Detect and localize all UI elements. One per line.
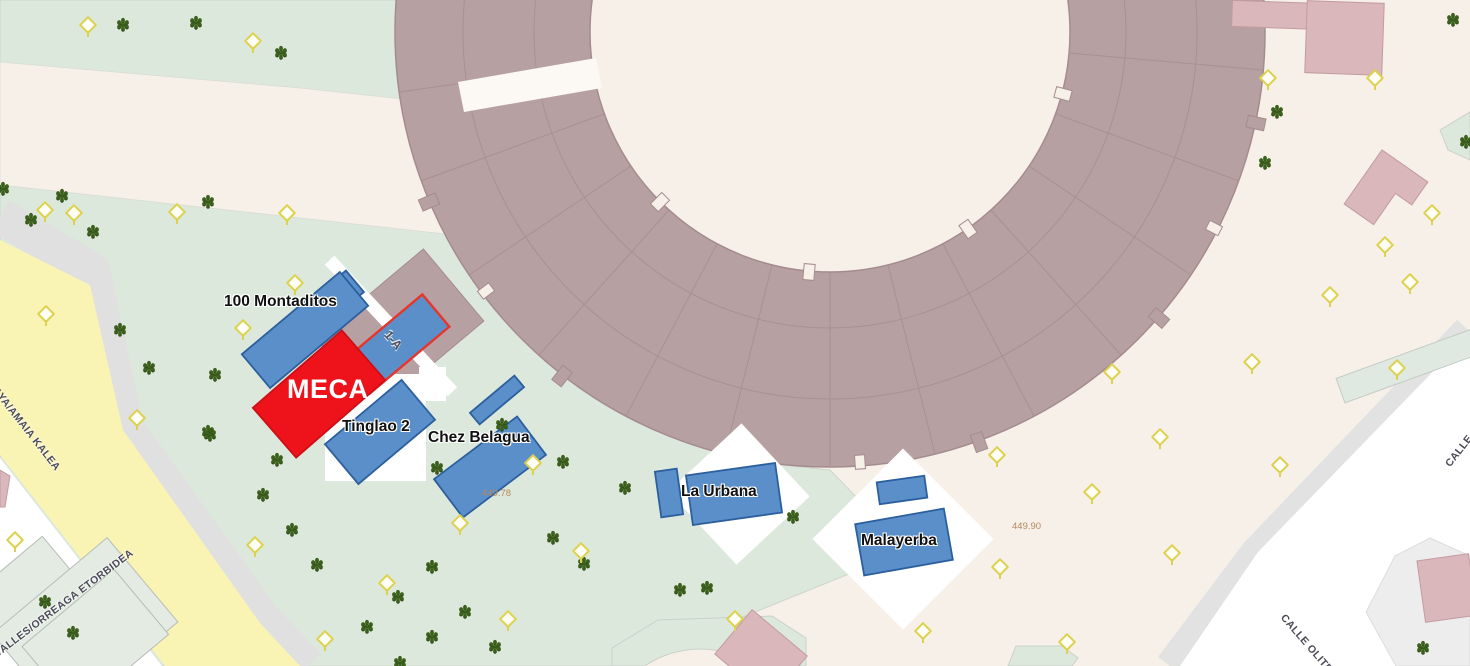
street-name-amaia: MAYA/AMAIA KALEA [0, 378, 63, 473]
street-name-calle: CALLE [1443, 433, 1470, 470]
label-chez-belagua: Chez Belagua [428, 429, 530, 447]
map-canvas[interactable]: ✽✽✽✽✽✽✽✽✽✽✽✽✽✽✽✽✽✽✽✽✽✽✽✽✽✽✽✽✽✽✽✽✽✽✽✽✽✽✽✽… [0, 0, 1470, 666]
elevation-label-1: 449.78 [482, 488, 511, 499]
label-parcel-1a: 1-A [381, 328, 405, 352]
map-labels-layer: 100 Montaditos MECA Tinglao 2 Chez Belag… [0, 0, 1470, 666]
label-meca: MECA [287, 374, 369, 405]
label-la-urbana: La Urbana [681, 483, 757, 501]
label-malayerba: Malayerba [861, 532, 937, 550]
street-name-valles: VALLES/ORREAGA ETORBIDEA [0, 547, 136, 660]
elevation-label-2: 449.90 [1012, 521, 1041, 532]
street-name-olite: CALLE OLITE [1278, 612, 1335, 666]
label-tinglao: Tinglao 2 [342, 418, 410, 436]
label-montaditos: 100 Montaditos [224, 293, 337, 311]
